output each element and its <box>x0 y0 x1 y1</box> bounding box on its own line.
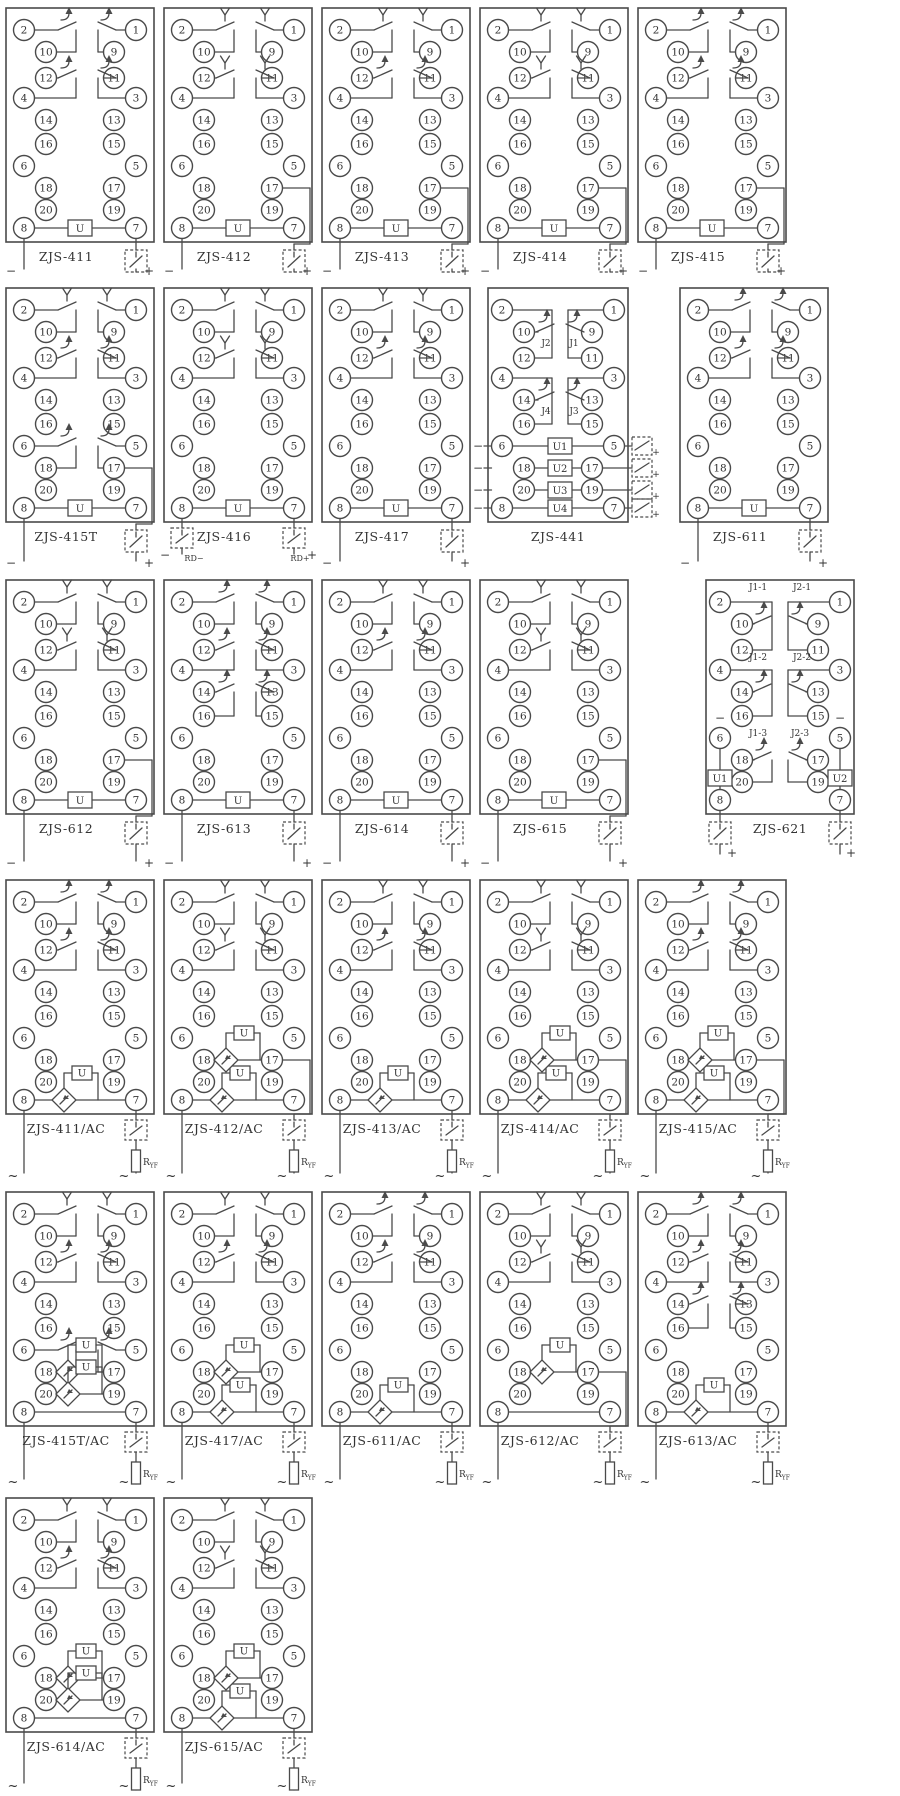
terminal-number: 14 <box>355 987 369 999</box>
terminal-9: 9 <box>778 322 799 343</box>
resistor-ryf: RYF <box>290 1462 316 1484</box>
terminal-number: 13 <box>423 115 436 127</box>
terminal-number: 2 <box>717 597 724 609</box>
terminal-10: 10 <box>36 914 57 935</box>
terminal-number: 6 <box>337 1033 344 1045</box>
wires <box>340 1412 452 1484</box>
terminal-2: 2 <box>488 20 509 41</box>
unit-zjs-415: 2110912114314131615651817201987UZJS-415−… <box>634 2 790 282</box>
plus-label: + <box>652 492 660 502</box>
terminal-10: 10 <box>352 1226 373 1247</box>
terminal-number: 5 <box>133 1345 140 1357</box>
terminal-number: 14 <box>197 1299 211 1311</box>
terminal-7: 7 <box>126 498 147 519</box>
terminal-number: 7 <box>291 223 298 235</box>
terminal-number: 16 <box>355 139 369 151</box>
terminal-10: 10 <box>510 614 531 635</box>
unit-zjs-416: 2110912114314131615651817201987UZJS-416−… <box>160 282 316 574</box>
terminal-number: 8 <box>179 1407 186 1419</box>
terminal-number: 20 <box>671 1389 684 1401</box>
terminal-18: 18 <box>514 458 535 479</box>
terminal-number: 14 <box>39 687 53 699</box>
terminal-number: 15 <box>781 419 794 431</box>
terminal-number: 1 <box>291 25 298 37</box>
terminal-10: 10 <box>352 42 373 63</box>
terminal-13: 13 <box>578 982 599 1003</box>
terminal-19: 19 <box>420 200 441 221</box>
delay-contact-icon <box>216 928 234 950</box>
unit-label: ZJS-413/AC <box>343 1121 422 1136</box>
resistor-ryf: RYF <box>132 1462 158 1484</box>
terminal-number: 6 <box>495 1345 502 1357</box>
terminal-number: 10 <box>197 919 210 931</box>
terminal-6: 6 <box>646 1340 667 1361</box>
terminal-number: 19 <box>811 777 824 789</box>
terminal-18: 18 <box>194 1362 215 1383</box>
terminal-4: 4 <box>488 88 509 109</box>
delay-contact-icon <box>256 288 274 310</box>
terminal-2: 2 <box>330 20 351 41</box>
terminal-3: 3 <box>442 960 463 981</box>
delay-contact-icon <box>256 8 274 30</box>
delay-contact-icon <box>216 880 234 902</box>
terminal-18: 18 <box>668 178 689 199</box>
terminal-16: 16 <box>710 414 731 435</box>
contact-group-label: J1-1 <box>748 583 767 593</box>
terminal-12: 12 <box>710 348 731 369</box>
terminal-number: 10 <box>197 1537 210 1549</box>
coil-u-box: U <box>68 500 92 516</box>
terminal-number: 18 <box>355 755 368 767</box>
delay-contact-icon <box>98 879 116 902</box>
delay-contact-icon <box>532 880 550 902</box>
terminal-16: 16 <box>668 134 689 155</box>
delay-contact-icon <box>216 56 234 78</box>
delay-contact-icon <box>572 8 590 30</box>
unit-zjs-412: 2110912114314131615651817201987UZJS-412−… <box>160 2 316 282</box>
terminal-15: 15 <box>262 414 283 435</box>
terminal-3: 3 <box>604 368 625 389</box>
terminal-16: 16 <box>352 1006 373 1027</box>
terminal-number: 2 <box>179 1209 186 1221</box>
terminal-number: 10 <box>671 47 684 59</box>
terminal-number: 14 <box>513 1299 527 1311</box>
unit-label: ZJS-411/AC <box>27 1121 106 1136</box>
terminal-8: 8 <box>14 218 35 239</box>
output-contact-icon <box>125 1738 147 1758</box>
delay-contact-icon <box>58 55 76 78</box>
coil-u-box: U <box>700 220 724 236</box>
delay-contact-icon <box>374 927 392 950</box>
coil-label: U <box>714 1029 722 1040</box>
delay-contact-icon <box>256 1192 274 1214</box>
terminal-number: 19 <box>265 1389 278 1401</box>
terminal-6: 6 <box>488 1028 509 1049</box>
terminal-12: 12 <box>36 68 57 89</box>
terminal-number: 17 <box>585 463 598 475</box>
terminal-5: 5 <box>442 728 463 749</box>
terminal-5: 5 <box>442 1028 463 1049</box>
terminal-number: 8 <box>695 503 702 515</box>
delay-contact-icon <box>58 423 76 446</box>
terminal-7: 7 <box>284 1708 305 1729</box>
terminal-number: 9 <box>269 1231 276 1243</box>
terminal-number: 2 <box>337 597 344 609</box>
terminal-3: 3 <box>284 368 305 389</box>
terminal-13: 13 <box>578 682 599 703</box>
terminal-16: 16 <box>194 1318 215 1339</box>
terminal-14: 14 <box>510 1294 531 1315</box>
unit-schematic: 2110912114314131615651817201987J2J1J4J3U… <box>458 282 662 570</box>
resistor-label: RYF <box>775 1158 790 1170</box>
output-contact-icon <box>632 459 652 477</box>
terminal-6: 6 <box>14 1646 35 1667</box>
terminal-15: 15 <box>262 706 283 727</box>
terminal-number: 15 <box>739 1011 752 1023</box>
terminal-16: 16 <box>510 706 531 727</box>
terminal-number: 15 <box>581 711 594 723</box>
unit-schematic: 2110912114314131615651817201987UZJS-613/… <box>634 1186 790 1488</box>
terminal-number: 10 <box>39 47 52 59</box>
terminal-number: 12 <box>197 945 210 957</box>
terminal-2: 2 <box>330 592 351 613</box>
terminal-number: 2 <box>337 897 344 909</box>
minus-label: − <box>473 439 483 453</box>
terminal-6: 6 <box>646 156 667 177</box>
terminal-number: 15 <box>107 1629 120 1641</box>
terminal-number: 2 <box>179 597 186 609</box>
terminal-number: 13 <box>265 1605 278 1617</box>
terminal-number: 7 <box>607 1095 614 1107</box>
terminal-15: 15 <box>578 1318 599 1339</box>
delay-contact-icon <box>690 1191 708 1214</box>
terminal-number: 6 <box>495 161 502 173</box>
unit-zjs-411-ac: 2110912114314131615651817201987UZJS-411/… <box>2 874 158 1186</box>
unit-zjs-414: 2110912114314131615651817201987UZJS-414−… <box>476 2 632 282</box>
terminal-number: 15 <box>739 1323 752 1335</box>
terminal-number: 3 <box>807 373 814 385</box>
terminal-20: 20 <box>194 1072 215 1093</box>
terminal-number: 18 <box>355 1367 368 1379</box>
terminal-14: 14 <box>36 682 57 703</box>
terminal-number: 4 <box>21 665 28 677</box>
terminal-18: 18 <box>352 750 373 771</box>
terminal-number: 1 <box>133 305 140 317</box>
delay-contact-icon <box>789 737 807 760</box>
resistor-label: RYF <box>301 1470 316 1482</box>
terminal-number: 5 <box>607 1345 614 1357</box>
coil-label: U <box>550 796 558 807</box>
terminal-number: 20 <box>513 1077 526 1089</box>
terminal-number: 1 <box>607 597 614 609</box>
terminal-10: 10 <box>510 914 531 935</box>
terminal-number: 16 <box>671 1011 685 1023</box>
unit-zjs-612-ac: 2110912114314131615651817201987UZJS-612/… <box>476 1186 632 1492</box>
terminal-number: 4 <box>499 373 506 385</box>
terminal-number: 1 <box>133 1515 140 1527</box>
terminal-number: 8 <box>179 795 186 807</box>
terminal-number: 17 <box>107 183 120 195</box>
plus-label: + <box>652 448 660 458</box>
terminal-10: 10 <box>36 614 57 635</box>
terminal-5: 5 <box>126 156 147 177</box>
terminal-12: 12 <box>510 1252 531 1273</box>
terminal-3: 3 <box>284 88 305 109</box>
terminal-number: 18 <box>197 1673 210 1685</box>
terminal-number: 12 <box>197 645 210 657</box>
terminal-number: 18 <box>355 183 368 195</box>
coil-label: U <box>234 504 242 515</box>
terminal-3: 3 <box>284 1578 305 1599</box>
terminal-18: 18 <box>36 750 57 771</box>
terminal-19: 19 <box>262 480 283 501</box>
terminal-number: 20 <box>39 1077 52 1089</box>
terminal-19: 19 <box>420 772 441 793</box>
terminal-number: 19 <box>423 205 436 217</box>
terminal-18: 18 <box>668 1050 689 1071</box>
terminal-number: 6 <box>21 161 28 173</box>
terminal-number: 13 <box>265 395 278 407</box>
coil-label: U <box>240 1341 248 1352</box>
terminal-number: 19 <box>739 205 752 217</box>
terminal-18: 18 <box>36 458 57 479</box>
output-contact-icon <box>441 1432 463 1452</box>
terminal-number: 17 <box>107 1367 120 1379</box>
terminal-number: 1 <box>607 897 614 909</box>
terminal-17: 17 <box>578 1362 599 1383</box>
terminal-14: 14 <box>36 390 57 411</box>
terminal-number: 13 <box>581 1299 594 1311</box>
terminal-1: 1 <box>284 1204 305 1225</box>
terminal-number: 17 <box>423 755 436 767</box>
terminal-number: 12 <box>39 1257 52 1269</box>
terminal-number: 15 <box>581 139 594 151</box>
coil-label: U4 <box>553 504 568 515</box>
terminal-8: 8 <box>14 498 35 519</box>
terminal-4: 4 <box>330 660 351 681</box>
resistor-label: RYF <box>617 1158 632 1170</box>
terminal-number: 18 <box>39 463 52 475</box>
terminal-number: 8 <box>495 795 502 807</box>
terminal-19: 19 <box>104 480 125 501</box>
terminal-20: 20 <box>668 1072 689 1093</box>
terminal-10: 10 <box>36 42 57 63</box>
terminal-12: 12 <box>36 1558 57 1579</box>
terminal-10: 10 <box>352 614 373 635</box>
coil-u-box: U <box>68 220 92 236</box>
terminal-19: 19 <box>736 200 757 221</box>
terminal-number: 9 <box>743 919 750 931</box>
terminal-number: 2 <box>337 25 344 37</box>
unit-label: ZJS-415T <box>34 529 97 544</box>
terminal-number: 4 <box>179 665 186 677</box>
resistor-ryf: RYF <box>448 1150 474 1172</box>
terminal-number: 16 <box>355 1011 369 1023</box>
terminal-number: 10 <box>517 327 530 339</box>
terminal-number: 3 <box>133 965 140 977</box>
delay-contact-icon <box>58 628 76 650</box>
terminal-number: 10 <box>735 619 748 631</box>
terminal-number: 17 <box>811 755 824 767</box>
terminal-5: 5 <box>604 436 625 457</box>
terminal-number: 5 <box>765 1345 772 1357</box>
minus-label: − <box>835 711 845 725</box>
terminal-6: 6 <box>488 156 509 177</box>
terminal-number: 12 <box>355 1257 368 1269</box>
coil-u-box: U <box>384 500 408 516</box>
terminal-20: 20 <box>194 200 215 221</box>
coil-label: U <box>82 1363 90 1374</box>
terminal-14: 14 <box>194 682 215 703</box>
terminal-1: 1 <box>442 892 463 913</box>
terminal-number: 18 <box>39 183 52 195</box>
terminal-number: 17 <box>265 1055 278 1067</box>
ac-label: ~ <box>324 1169 335 1182</box>
terminal-19: 19 <box>578 1072 599 1093</box>
unit-schematic: 2110912114314131615651817201987UZJS-414−… <box>476 2 632 278</box>
delay-contact-icon <box>58 580 76 602</box>
relay-outline <box>6 1192 154 1426</box>
terminal-number: 13 <box>581 687 594 699</box>
terminal-number: 2 <box>337 305 344 317</box>
terminal-17: 17 <box>104 1050 125 1071</box>
terminal-number: 6 <box>499 441 506 453</box>
terminal-3: 3 <box>126 1578 147 1599</box>
coil-label: U <box>234 796 242 807</box>
resistor-ryf: RYF <box>606 1150 632 1172</box>
terminal-number: 7 <box>611 503 618 515</box>
terminal-7: 7 <box>758 1090 779 1111</box>
unit-schematic: 2110912114314131615651817201987UZJS-611−… <box>676 282 832 570</box>
delay-contact-icon <box>58 7 76 30</box>
delay-contact-icon <box>532 1192 550 1214</box>
coil-label: U <box>392 796 400 807</box>
output-contact-icon <box>709 822 731 844</box>
wires <box>340 1100 452 1173</box>
terminal-number: 5 <box>133 441 140 453</box>
terminal-number: 18 <box>39 755 52 767</box>
terminal-14: 14 <box>352 1294 373 1315</box>
terminal-19: 19 <box>262 1690 283 1711</box>
terminal-10: 10 <box>668 42 689 63</box>
terminal-number: 15 <box>107 711 120 723</box>
terminal-number: 12 <box>39 73 52 85</box>
terminal-number: 9 <box>743 47 750 59</box>
terminal-17: 17 <box>262 1668 283 1689</box>
coil-label: U <box>236 1381 244 1392</box>
terminal-7: 7 <box>284 1090 305 1111</box>
terminal-number: 7 <box>291 795 298 807</box>
terminal-number: 7 <box>807 503 814 515</box>
unit-schematic: 2110912114314131615651817201987UZJS-413/… <box>318 874 474 1182</box>
delay-contact-icon <box>414 1191 432 1214</box>
terminal-2: 2 <box>710 592 731 613</box>
relay-outline <box>6 288 154 522</box>
terminal-4: 4 <box>646 960 667 981</box>
terminal-13: 13 <box>262 110 283 131</box>
terminal-number: 8 <box>717 795 724 807</box>
terminal-number: 1 <box>765 25 772 37</box>
terminal-number: 1 <box>291 305 298 317</box>
terminal-number: 5 <box>133 161 140 173</box>
terminal-8: 8 <box>172 790 193 811</box>
terminal-18: 18 <box>668 1362 689 1383</box>
delay-contact-icon <box>414 580 432 602</box>
terminal-number: 3 <box>291 93 298 105</box>
terminal-number: 14 <box>713 395 727 407</box>
unit-schematic: 2110912114314131615651817201987UZJS-413−… <box>318 2 474 278</box>
terminal-number: 19 <box>265 1077 278 1089</box>
terminal-number: 8 <box>495 223 502 235</box>
terminal-number: 12 <box>513 945 526 957</box>
terminal-number: 16 <box>513 711 527 723</box>
terminal-16: 16 <box>36 706 57 727</box>
terminal-number: 3 <box>449 1277 456 1289</box>
unit-zjs-412-ac: 2110912114314131615651817201987UUZJS-412… <box>160 874 316 1186</box>
terminal-10: 10 <box>194 614 215 635</box>
terminal-number: 16 <box>735 711 749 723</box>
terminal-number: 19 <box>581 1389 594 1401</box>
unit-schematic: 2110912114314131615651817201987UZJS-415−… <box>634 2 790 278</box>
terminal-number: 10 <box>39 1537 52 1549</box>
relay-outline <box>322 580 470 814</box>
terminal-4: 4 <box>172 1578 193 1599</box>
delay-contact-icon <box>374 880 392 902</box>
terminal-16: 16 <box>510 1006 531 1027</box>
terminal-8: 8 <box>646 1402 667 1423</box>
terminal-number: 18 <box>39 1055 52 1067</box>
terminal-number: 16 <box>39 1011 53 1023</box>
terminal-6: 6 <box>172 728 193 749</box>
terminal-7: 7 <box>126 1708 147 1729</box>
terminal-number: 2 <box>21 597 28 609</box>
terminal-number: 9 <box>427 619 434 631</box>
terminal-number: 2 <box>653 1209 660 1221</box>
terminal-16: 16 <box>352 134 373 155</box>
relay-outline <box>480 580 628 814</box>
terminal-number: 14 <box>671 115 685 127</box>
terminal-16: 16 <box>194 1006 215 1027</box>
delay-contact-icon <box>753 669 771 692</box>
delay-contact-icon <box>730 7 748 30</box>
relay-outline <box>680 288 828 522</box>
terminal-number: 7 <box>837 795 844 807</box>
unit-schematic: 2110912114314131615651817201987UUZJS-415… <box>2 1186 158 1488</box>
terminal-number: 14 <box>671 1299 685 1311</box>
terminal-13: 13 <box>104 682 125 703</box>
terminal-number: 10 <box>197 1231 210 1243</box>
relay-outline <box>164 580 312 814</box>
terminal-number: 3 <box>133 665 140 677</box>
minus-label: − <box>473 501 483 515</box>
terminal-number: 10 <box>713 327 726 339</box>
rectifier-bridge-icon: U <box>214 1026 260 1072</box>
terminal-16: 16 <box>514 414 535 435</box>
terminal-6: 6 <box>710 728 731 749</box>
terminal-number: 18 <box>197 183 210 195</box>
terminal-number: 13 <box>423 395 436 407</box>
terminal-8: 8 <box>688 498 709 519</box>
terminal-6: 6 <box>172 436 193 457</box>
coil-label: U <box>234 224 242 235</box>
delay-contact-icon <box>572 1192 590 1214</box>
output-contact-icon <box>799 530 821 552</box>
delay-contact-icon <box>98 580 116 602</box>
terminal-14: 14 <box>352 982 373 1003</box>
terminal-number: 17 <box>265 183 278 195</box>
delay-contact-icon <box>58 288 76 310</box>
terminal-19: 19 <box>104 1384 125 1405</box>
